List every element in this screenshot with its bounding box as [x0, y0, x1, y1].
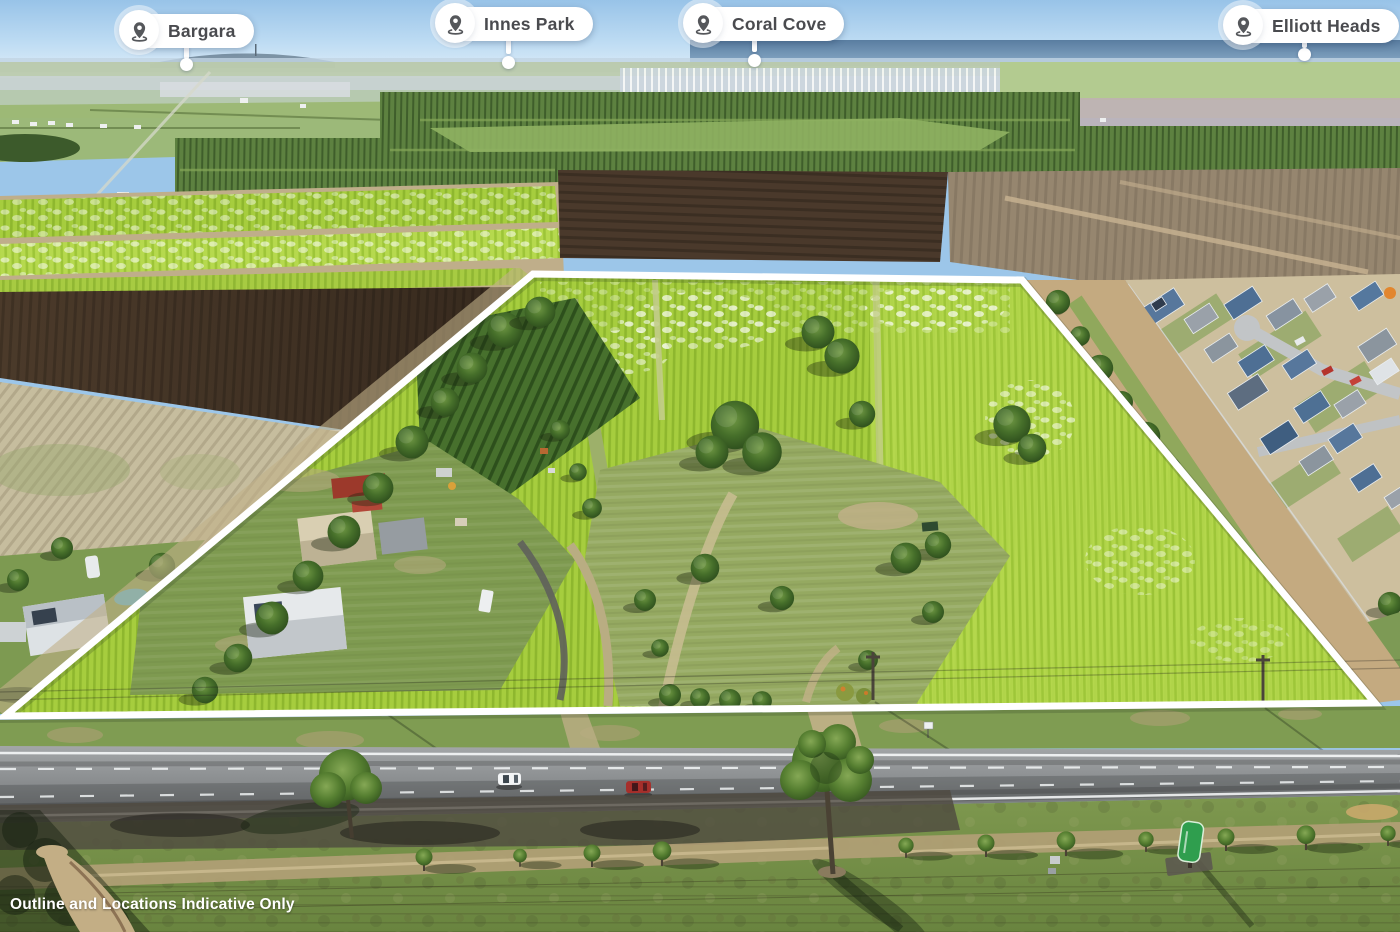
- location-pill-innes-park: Innes Park: [438, 7, 593, 41]
- location-label: Elliott Heads: [1272, 16, 1381, 37]
- location-label: Coral Cove: [732, 14, 826, 35]
- pill-tail-dot: [502, 56, 515, 69]
- pill-tail-dot: [180, 58, 193, 71]
- location-pill-elliott-heads: Elliott Heads: [1226, 9, 1399, 43]
- parked-ute: [922, 521, 939, 531]
- orange-shade-sail: [1384, 287, 1396, 299]
- white-car: [496, 773, 522, 790]
- aerial-listing-photo: Bargara Innes Park Coral Cove Elliott He…: [0, 0, 1400, 932]
- location-label: Innes Park: [484, 14, 575, 35]
- location-label: Bargara: [168, 21, 236, 42]
- greenhouse-band: [620, 68, 1010, 92]
- location-pill-coral-cove: Coral Cove: [686, 7, 844, 41]
- pin-badge: [683, 3, 723, 43]
- pin-badge: [119, 10, 159, 50]
- disclaimer-text: Outline and Locations Indicative Only: [10, 896, 295, 914]
- map-pin-icon: [691, 10, 716, 35]
- pill-tail-dot: [1298, 48, 1311, 61]
- pin-badge: [435, 3, 475, 43]
- map-pin-icon: [1231, 12, 1256, 37]
- roadside-sign: [924, 722, 933, 729]
- aerial-scene: [0, 0, 1400, 932]
- pin-badge: [1223, 5, 1263, 45]
- grey-shed: [378, 517, 428, 554]
- map-pin-icon: [443, 10, 468, 35]
- map-pin-icon: [127, 17, 152, 42]
- location-pill-bargara: Bargara: [122, 14, 254, 48]
- pill-tail-dot: [748, 54, 761, 67]
